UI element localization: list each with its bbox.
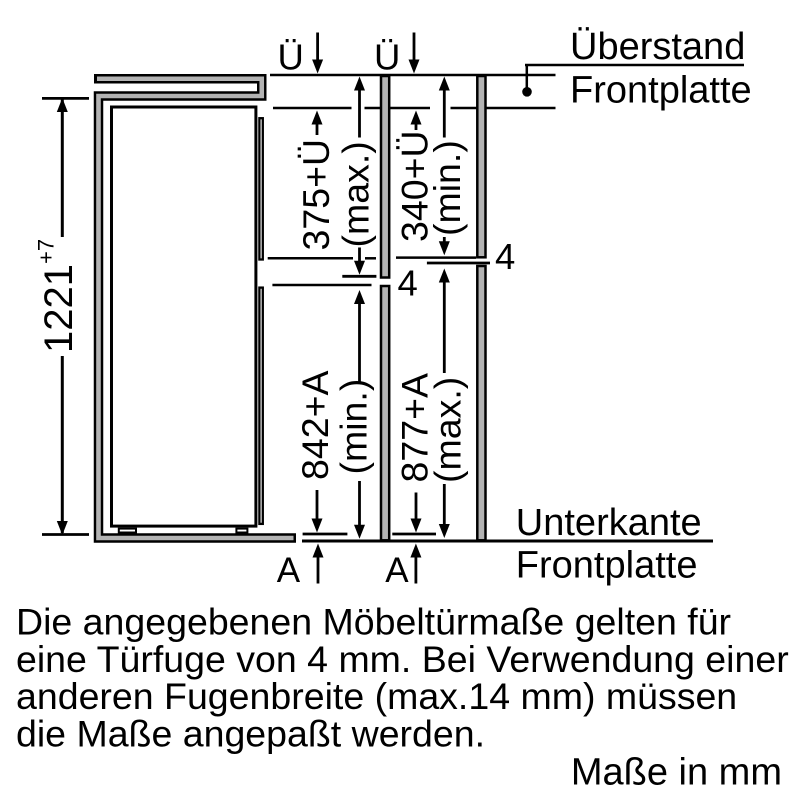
svg-text:Ü: Ü: [278, 36, 304, 77]
svg-text:Frontplatte: Frontplatte: [570, 70, 752, 112]
svg-text:eine Türfuge von 4 mm. Bei Ver: eine Türfuge von 4 mm. Bei Verwendung ei…: [16, 638, 789, 680]
svg-text:Unterkante: Unterkante: [516, 502, 702, 544]
svg-text:4: 4: [398, 262, 418, 303]
svg-text:(min.): (min.): [426, 140, 468, 236]
svg-text:die Maße angepaßt werden.: die Maße angepaßt werden.: [16, 712, 485, 754]
svg-text:(min.): (min.): [333, 379, 375, 475]
svg-text:(max.): (max.): [427, 377, 469, 483]
svg-text:Frontplatte: Frontplatte: [516, 545, 698, 587]
svg-text:Überstand: Überstand: [570, 26, 745, 68]
svg-text:375+Ü: 375+Ü: [295, 139, 337, 251]
svg-text:A: A: [385, 551, 409, 590]
svg-text:A: A: [277, 551, 301, 590]
svg-text:(max.): (max.): [335, 141, 377, 247]
svg-text:Die angegebenen Möbeltürmaße g: Die angegebenen Möbeltürmaße gelten für: [16, 601, 731, 643]
svg-text:Maße in mm: Maße in mm: [571, 752, 782, 794]
svg-text:anderen Fugenbreite (max.14 mm: anderen Fugenbreite (max.14 mm) müssen: [16, 675, 737, 717]
svg-text:Ü: Ü: [374, 36, 400, 77]
svg-text:842+A: 842+A: [294, 371, 336, 480]
svg-text:4: 4: [495, 236, 515, 277]
